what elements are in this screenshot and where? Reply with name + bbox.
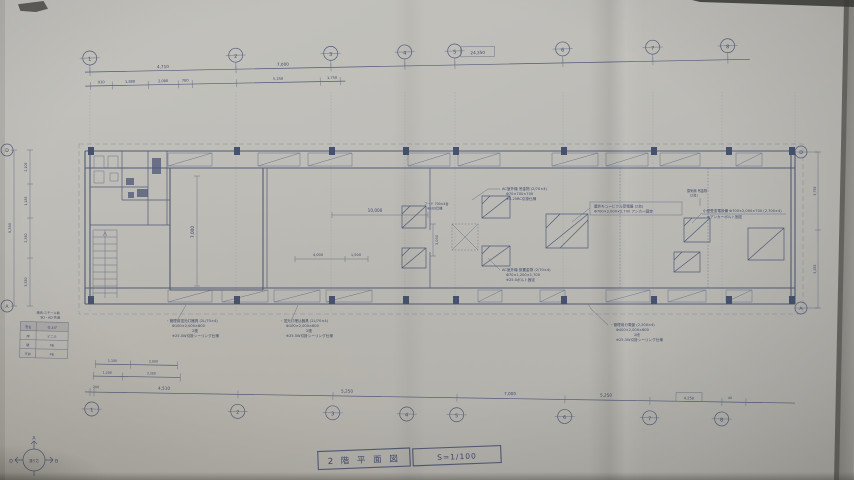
- annotation-fluorescent-mid: ・蛍光灯埋込器具 (2L/70×4) Φ100×2,000×600 2連 ※25…: [280, 305, 333, 338]
- drawing-title: 2 階 平 面 図: [328, 453, 401, 467]
- annotation-line: ※アンカーボルト固定: [707, 214, 743, 219]
- annotation-line: ※25.5W引掛シーリング仕様: [616, 337, 663, 342]
- annotation-line: Φ400×2,000×600: [616, 328, 650, 332]
- dim-top2: 5,250: [273, 77, 284, 81]
- grid-axis-label: 1: [90, 408, 93, 414]
- dim-sub: 3,300: [147, 371, 156, 375]
- title-block: 2 階 平 面 図 S=1/100: [318, 445, 502, 470]
- dim-top2: 1,750: [327, 76, 338, 80]
- grid-row-label: D: [5, 148, 9, 154]
- dim-top2: 2,000: [158, 79, 169, 83]
- annotation-panel: ・管理用分電盤 (2,200×4) Φ400×2,000×600 2段 ※25.…: [588, 304, 663, 342]
- legend-cell: 床: [26, 333, 30, 338]
- dim-left: 2,350: [24, 233, 28, 242]
- annotation-line: 換気扇 吊金物: [687, 188, 708, 193]
- legend-cell: 壁: [26, 342, 30, 347]
- dim-hall-length: 10,000: [368, 208, 383, 213]
- annotation-line: ※25.5ボルト固定: [506, 277, 535, 282]
- annotation-line: 2連: [306, 328, 312, 333]
- dim-overall: 24,350: [470, 50, 485, 55]
- annotation-line: フード 700×4台: [424, 201, 449, 206]
- compass-rose: A B D 通り芯: [9, 436, 58, 477]
- dim-bottom: 5,250: [341, 388, 353, 393]
- bottom-dimension-chain: 200 4,510 5,250 7,000 5,250 4,250 40 1,1…: [82, 358, 796, 427]
- annotation-fluorescent-left: ・管理用蛍光灯器具 (2L/70×4) Φ100×2,000×600 2連 ※2…: [166, 305, 219, 338]
- annotation-line: ※5.25RC引掛仕様: [506, 196, 537, 201]
- dim-room-depth: 7,000: [190, 226, 195, 238]
- legend-cell: PB: [50, 353, 54, 357]
- grid-bubbles-bottom: 1 2 3 4 5 6 7 8: [82, 402, 732, 426]
- annotation-line: ・管理用分電盤 (2,200×4): [610, 322, 655, 327]
- compass-label-right: B: [55, 459, 58, 465]
- grid-axis-label: 4: [405, 412, 408, 418]
- grid-axis-label: 3: [329, 52, 332, 58]
- annotation-line: 屋外キュービクル受電盤 (2台): [594, 204, 644, 209]
- annotation-line: 2連: [192, 328, 198, 333]
- annotation-vent: 換気扇 吊金物 (2台): [687, 188, 708, 206]
- dim-shaft: 3,000: [435, 234, 439, 245]
- dim-sub: 2,000: [149, 359, 158, 363]
- annotation-ac-base: AC室外機 設置金物 (2/70×4) Φ70×1,200×1,700 ※25.…: [488, 258, 551, 282]
- grid-row-label: D: [799, 150, 803, 156]
- grid-axis-label: 2: [236, 410, 239, 416]
- legend-note: SD・AD 共通: [40, 314, 61, 319]
- compass-label-left: D: [9, 459, 13, 465]
- dim-top: 7,000: [277, 62, 289, 67]
- compass-label-up: A: [32, 436, 36, 442]
- dim-bottom: 4,510: [158, 386, 170, 391]
- dim-top2: 910: [98, 80, 106, 84]
- dim-bottom: 7,000: [504, 391, 516, 396]
- dim-right: 3,795: [813, 186, 817, 195]
- blueprint-photo: 1 2 3 4 5 6 7 8 4,710 7,000 910 1,800 2,…: [0, 0, 854, 480]
- compass-center-label: 通り芯: [29, 458, 39, 463]
- dim-left: 3,550: [24, 277, 28, 286]
- dim-bottom-boxed: 4,250: [684, 396, 695, 400]
- floor-plan-drawing: 1 2 3 4 5 6 7 8 4,710 7,000 910 1,800 2,…: [0, 0, 854, 480]
- legend-table: 建具:スチール製 SD・AD 共通 室名 仕上げ 床 ビニル 壁 PB 天井 P…: [20, 310, 69, 359]
- dim-top2: 700: [182, 79, 190, 83]
- right-dimension-chain: 3,795 5,555 D A: [795, 146, 821, 314]
- left-dimension-chain: 9,350 2,105 1,185 2,350 3,550 D A: [1, 144, 33, 312]
- annotation-line: (2台): [690, 193, 698, 198]
- annotation-line: AC室外機 設置金物 (2/70×4): [502, 267, 551, 272]
- annotation-line: Φ70×700×700: [506, 192, 534, 196]
- overall-length-box: 24,350: [461, 46, 495, 57]
- annotation-line: 小型受変電設備 Φ700×2,000×700 (2,700×4): [703, 208, 782, 213]
- dim-right: 5,555: [813, 264, 817, 273]
- grid-axis-label: 3: [331, 411, 334, 417]
- grid-axis-label: 5: [455, 413, 458, 419]
- dim-left-outer: 9,350: [8, 222, 12, 233]
- dim-left: 1,185: [24, 196, 28, 205]
- legend-cell: ビニル: [47, 334, 57, 339]
- annotation-line: ※25.5W引掛シーリング仕様: [286, 333, 333, 338]
- annotation-switchgear: 小型受変電設備 Φ700×2,000×700 (2,700×4) ※アンカーボル…: [692, 208, 786, 223]
- drawing-scale: S=1/100: [437, 451, 477, 462]
- legend-cell: 室名: [25, 324, 31, 329]
- grid-axis-label: 5: [453, 49, 456, 55]
- annotation-line: ・蛍光灯埋込器具 (2L/70×4): [280, 318, 329, 323]
- top-dimension-chain: 1 2 3 4 5 6 7 8 4,710 7,000 910 1,800 2,…: [80, 38, 751, 90]
- grid-axis-label: 2: [234, 54, 237, 60]
- dim-bottom: 5,250: [600, 393, 612, 398]
- grid-axis-label: 8: [726, 44, 729, 50]
- bottom-boxed-dim: 4,250: [676, 392, 702, 401]
- annotation-line: ※25.5W引掛シーリング仕様: [172, 333, 219, 338]
- plan-body: 7,000 10,000 4,000 1,500 3,000 AC室外機 吊金物…: [79, 92, 803, 314]
- dim-bay-b: 1,500: [351, 253, 362, 257]
- legend-cell: 仕上げ: [47, 325, 57, 330]
- dim-bottom-end: 40: [728, 396, 732, 400]
- legend-cell: PB: [50, 344, 54, 348]
- annotation-line: ※SUS仕様: [427, 206, 443, 211]
- grid-axis-label: 1: [88, 56, 91, 62]
- grid-axis-label: 6: [563, 415, 566, 421]
- large-room: [170, 168, 263, 290]
- annotation-line: Φ100×2,000×600: [172, 324, 206, 328]
- annotation-line: Φ70×1,200×1,700: [506, 273, 541, 277]
- grid-axis-label: 7: [651, 46, 654, 52]
- dim-top2: 1,800: [125, 80, 136, 84]
- grid-axis-label: 8: [720, 417, 723, 423]
- annotation-line: Φ100×2,000×600: [286, 324, 320, 328]
- annotation-line: ・管理用蛍光灯器具 (2L/70×4): [166, 318, 218, 323]
- annotation-line: 2段: [634, 332, 640, 337]
- annotation-line: Φ700×2,000×2,700 アンカー固定: [594, 209, 653, 214]
- grid-axis-label: 6: [561, 47, 564, 53]
- wall-poche: [126, 158, 161, 198]
- legend-cell: 天井: [25, 351, 31, 356]
- windows-top: [168, 153, 762, 166]
- fixtures: [94, 156, 118, 183]
- dim-bottom: 200: [93, 385, 99, 389]
- annotation-cubicle: 屋外キュービクル受電盤 (2台) Φ700×2,000×2,700 アンカー固定: [572, 202, 682, 222]
- grid-axis-label: 4: [403, 50, 406, 56]
- columns: [88, 147, 795, 304]
- dim-top: 4,710: [157, 64, 169, 69]
- annotation-hood: フード 700×4台 ※SUS仕様: [424, 201, 449, 211]
- dim-bay-a: 4,000: [313, 253, 324, 257]
- dim-sub: 1,100: [108, 359, 117, 363]
- windows-bottom: [168, 290, 752, 302]
- grid-axis-label: 7: [648, 416, 651, 422]
- annotation-line: AC室外機 吊金物 (2/70×4): [502, 186, 548, 191]
- grid-row-label: A: [5, 304, 9, 310]
- annotation-ac-hanger: AC室外機 吊金物 (2/70×4) Φ70×700×700 ※5.25RC引掛…: [472, 186, 548, 201]
- equipment-units: [402, 196, 784, 272]
- dim-left: 2,105: [24, 162, 28, 171]
- roof-hatch-opening: [452, 224, 478, 250]
- dim-sub: 1,200: [103, 371, 112, 375]
